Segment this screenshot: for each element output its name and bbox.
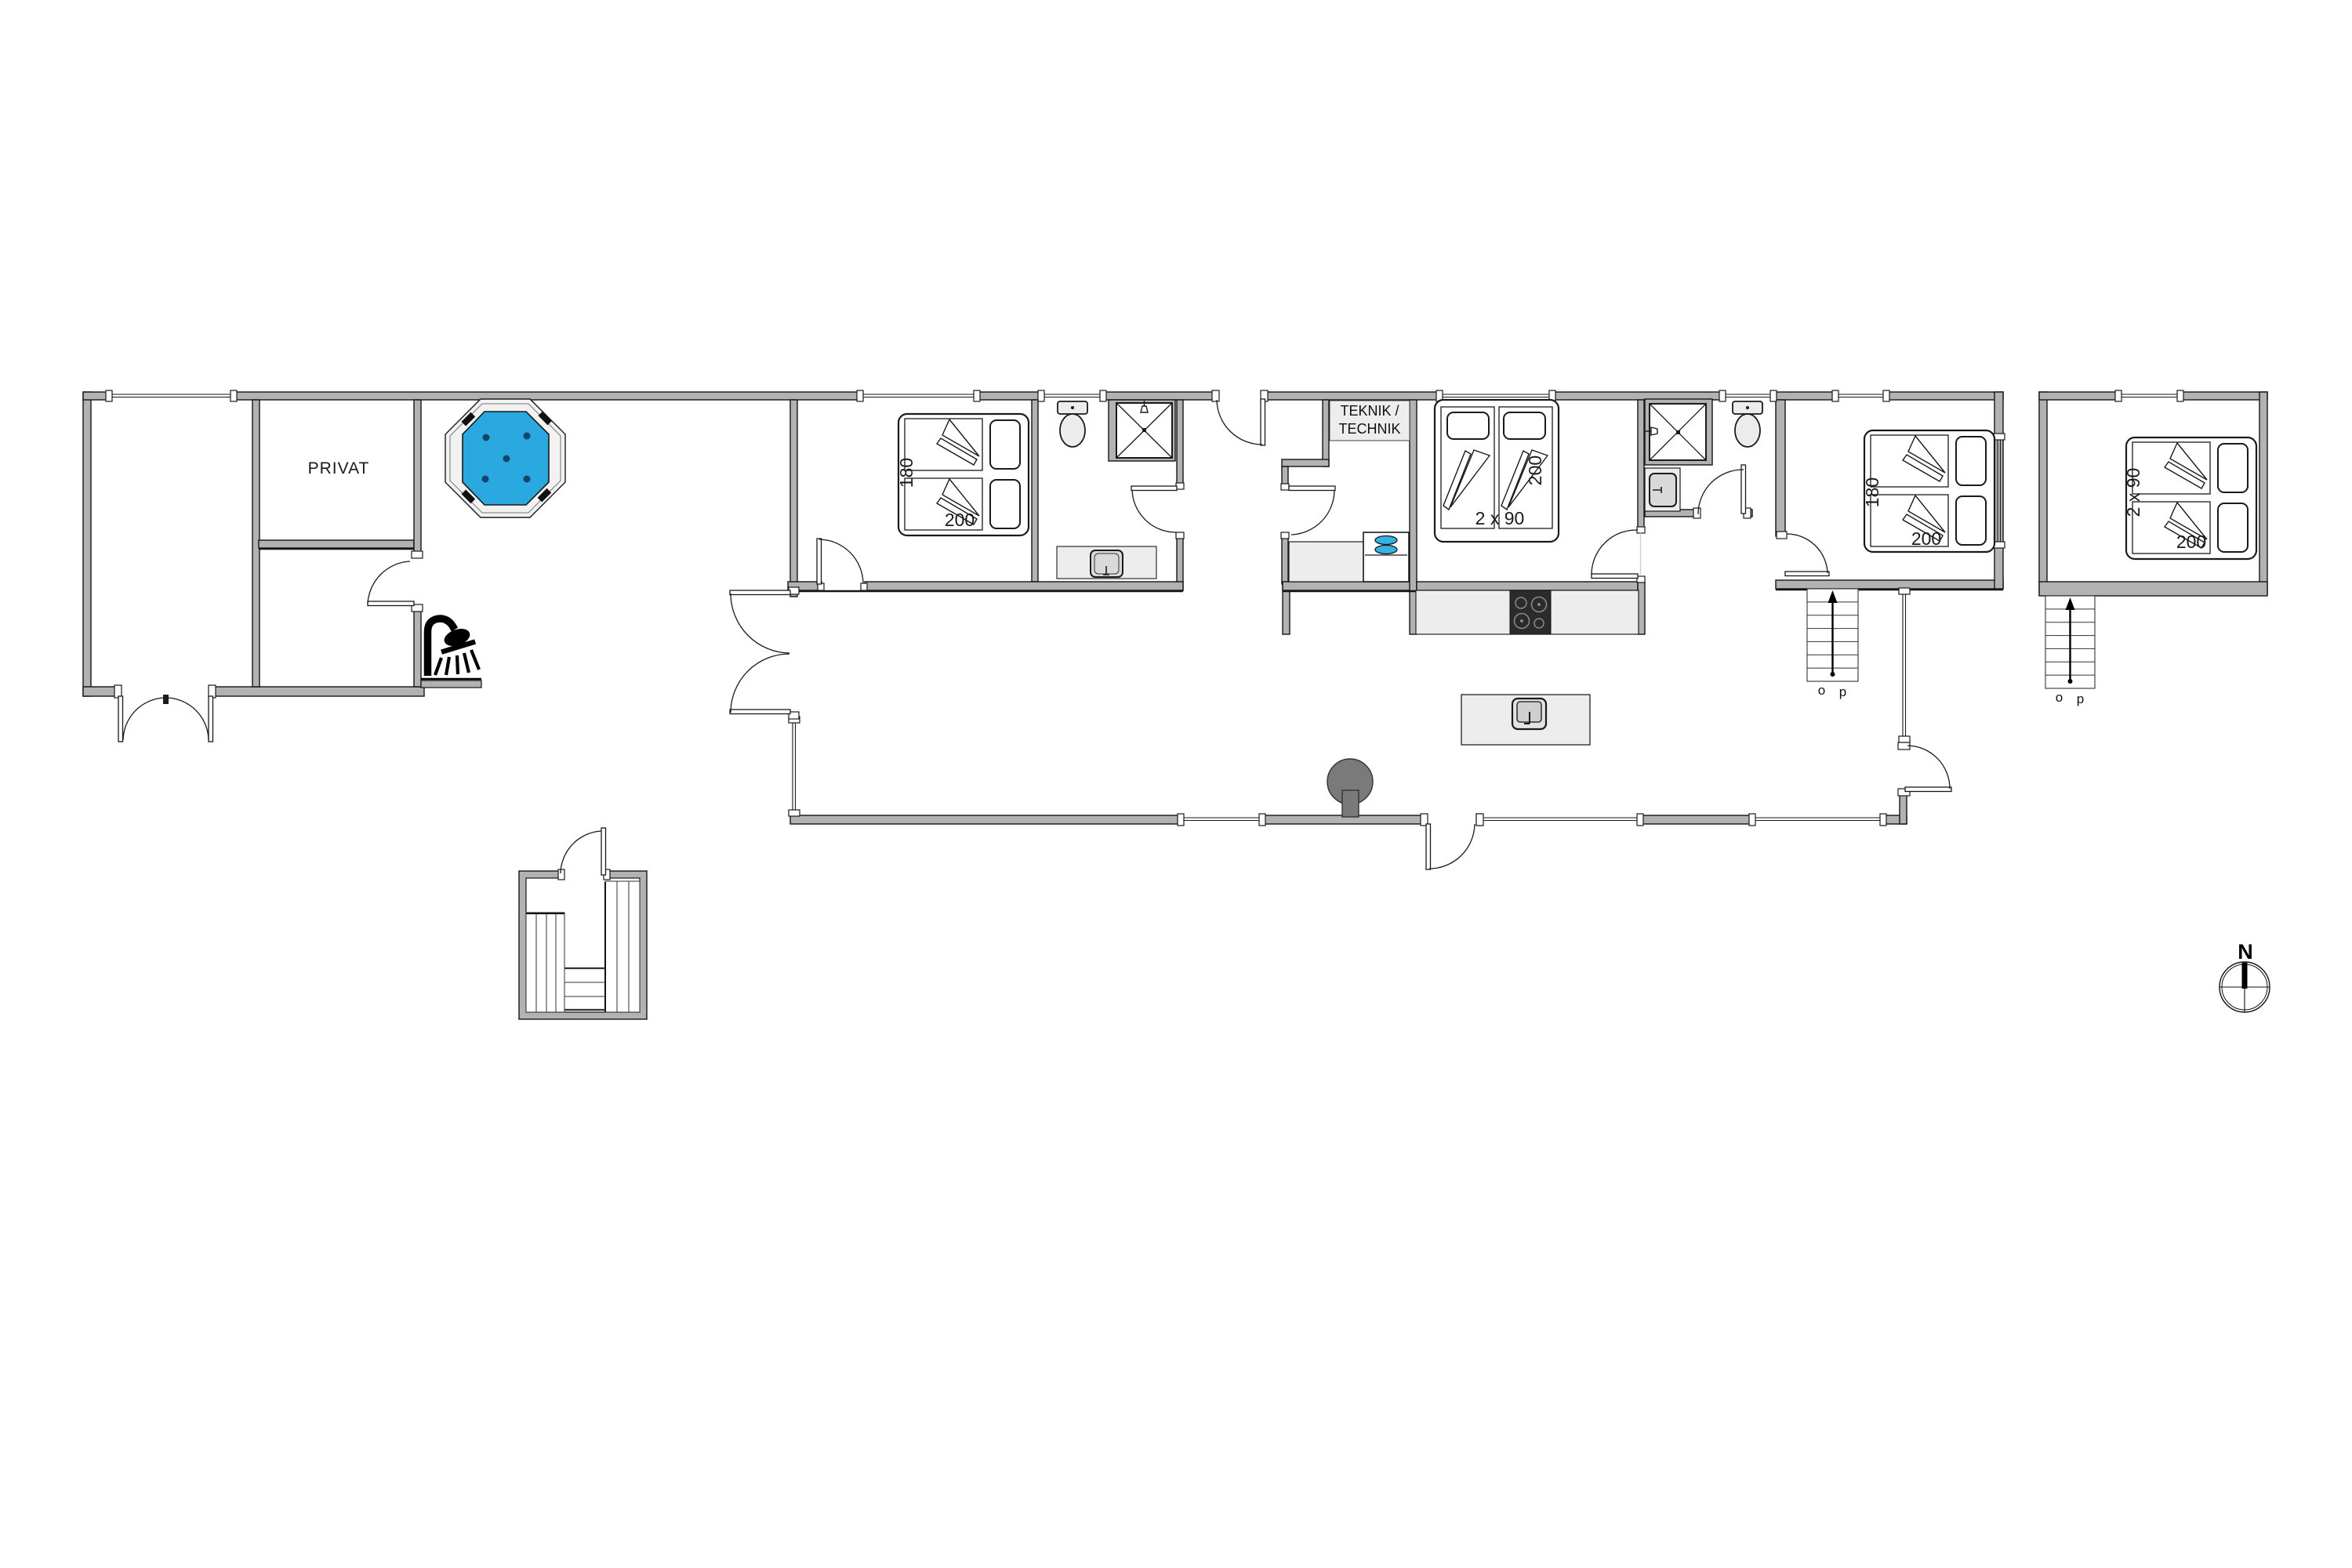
svg-text:200: 200 [1525, 456, 1545, 485]
svg-text:TECHNIK: TECHNIK [1338, 421, 1400, 437]
svg-text:PRIVAT: PRIVAT [308, 459, 370, 477]
svg-text:200: 200 [2176, 532, 2206, 552]
svg-text:TEKNIK /: TEKNIK / [1340, 403, 1399, 419]
svg-text:o: o [2056, 690, 2063, 705]
svg-text:180: 180 [896, 458, 916, 488]
svg-text:180: 180 [1862, 477, 1882, 507]
svg-text:200: 200 [1911, 528, 1941, 549]
svg-text:p: p [2077, 691, 2084, 706]
svg-text:p: p [1839, 684, 1846, 699]
svg-text:200: 200 [945, 510, 975, 530]
svg-text:2 x 90: 2 x 90 [2123, 468, 2143, 517]
svg-text:2 x 90: 2 x 90 [1475, 508, 1525, 528]
svg-text:o: o [1818, 683, 1825, 698]
svg-text:N: N [2238, 940, 2253, 964]
